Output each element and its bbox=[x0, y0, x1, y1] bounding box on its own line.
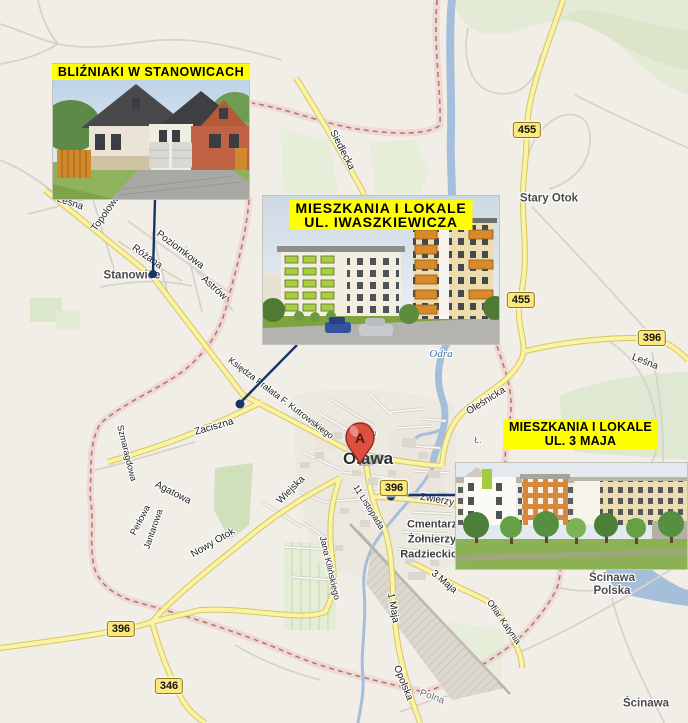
banner-stanowice[interactable]: BLIŹNIAKI W STANOWICACH bbox=[52, 64, 250, 80]
apartment-render-3maja bbox=[456, 463, 687, 569]
photo-3maja-apartments[interactable] bbox=[455, 462, 688, 570]
banner-iwaszkiewicza-line2: UL. IWASZKIEWICZA bbox=[295, 215, 466, 229]
map-marker-a[interactable]: A bbox=[332, 420, 388, 468]
banner-3maja-line1: MIESZKANIA I LOKALE bbox=[509, 420, 652, 434]
marker-letter: A bbox=[355, 430, 365, 446]
photo-stanowice-houses[interactable]: BLIŹNIAKI W STANOWICACH bbox=[52, 63, 250, 200]
map-canvas[interactable]: Oława LeśnaTopolowaRóżanaPoziomkowaAstró… bbox=[0, 0, 688, 723]
banner-3maja[interactable]: MIESZKANIA I LOKALE UL. 3 MAJA bbox=[503, 419, 658, 449]
banner-3maja-line2: UL. 3 MAJA bbox=[509, 434, 652, 448]
banner-stanowice-text: BLIŹNIAKI W STANOWICACH bbox=[58, 65, 244, 79]
house-render bbox=[53, 64, 249, 199]
photo-iwaszkiewicza-apartments[interactable]: MIESZKANIA I LOKALE UL. IWASZKIEWICZA bbox=[262, 195, 500, 345]
banner-iwaszkiewicza-line1: MIESZKANIA I LOKALE bbox=[295, 201, 466, 215]
banner-iwaszkiewicza[interactable]: MIESZKANIA I LOKALE UL. IWASZKIEWICZA bbox=[289, 200, 472, 230]
